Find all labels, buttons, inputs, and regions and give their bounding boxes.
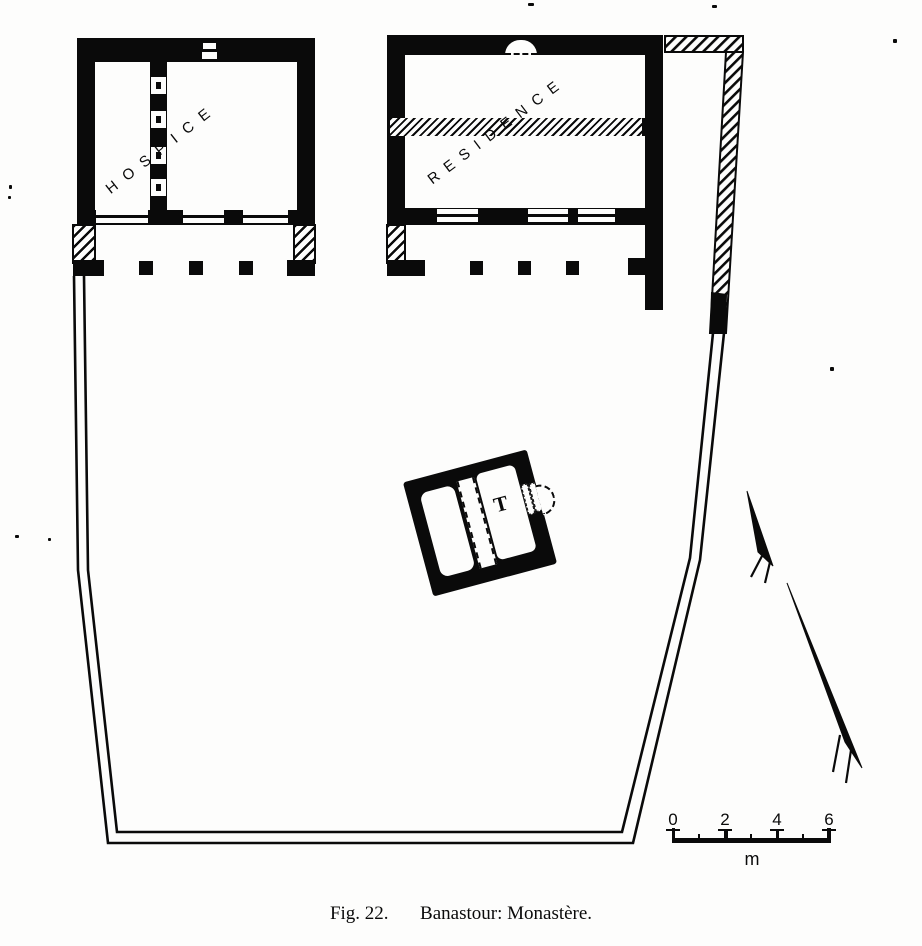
scan-speck	[830, 367, 834, 371]
scan-speck	[8, 196, 11, 199]
scale-bar-minor-tick	[802, 834, 804, 843]
scan-speck	[9, 185, 12, 189]
scan-speck	[15, 535, 19, 538]
figure-caption: Fig. 22. Banastour: Monastère.	[0, 903, 922, 925]
scale-bar-tick	[776, 831, 779, 843]
scale-bar-tick	[827, 828, 831, 843]
scale-bar-minor-tick	[698, 834, 700, 843]
scan-speck	[893, 39, 897, 43]
figure-caption-number: Fig. 22.	[330, 903, 389, 924]
scale-tick-label-2: 2	[718, 811, 732, 831]
north-arrow-icon	[747, 491, 862, 783]
scan-speck	[48, 538, 51, 541]
scale-bar-tick	[672, 828, 675, 843]
scale-tick-label-4: 4	[770, 811, 784, 831]
enclosure-wall	[74, 276, 724, 843]
scale-bar-tick	[724, 829, 728, 843]
scan-speck	[528, 3, 534, 6]
figure-plan-banastour: HOSPICE RESIDENCE	[0, 0, 922, 946]
scan-speck	[712, 5, 717, 8]
scale-bar-unit: m	[742, 849, 762, 870]
northeast-hatched-wall	[665, 36, 743, 333]
figure-caption-title: Banastour: Monastère.	[420, 903, 592, 924]
scale-bar-minor-tick	[750, 834, 752, 843]
